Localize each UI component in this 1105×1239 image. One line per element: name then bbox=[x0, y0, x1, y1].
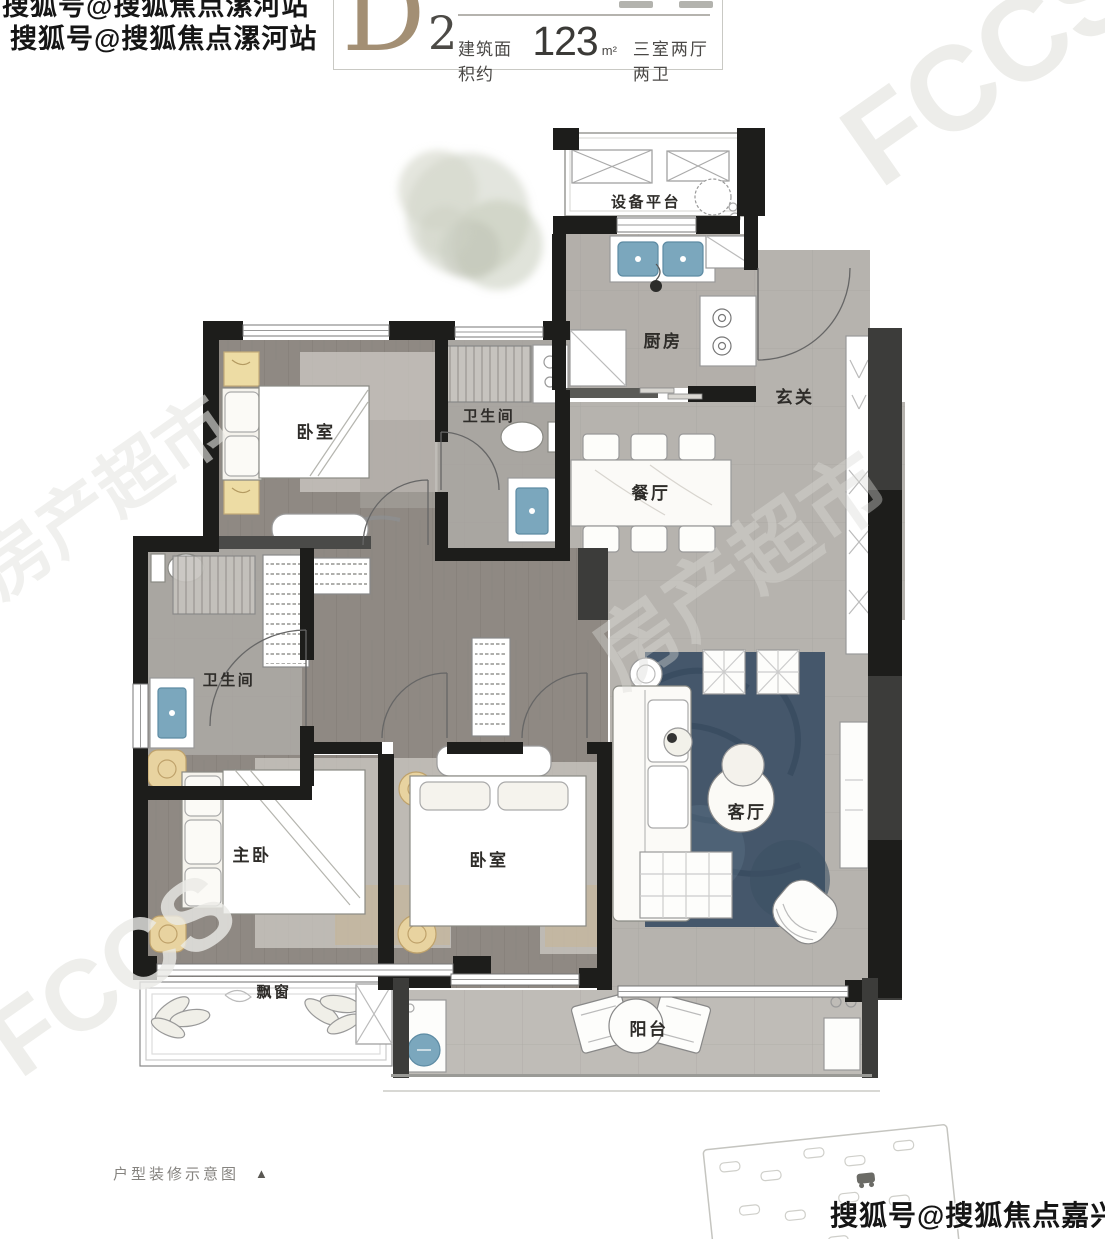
room-label-balcony: 阳台 bbox=[630, 1019, 669, 1039]
room-label-master: 主卧 bbox=[233, 845, 272, 865]
layout-text: 三室两厅两卫 bbox=[633, 35, 722, 85]
sohu-watermark-bottom-right: 搜狐号@搜狐焦点嘉兴站 bbox=[830, 1194, 1105, 1234]
header-divider-line bbox=[458, 14, 710, 16]
sohu-watermark-top-line2: 搜狐号@搜狐焦点漯河站 bbox=[10, 17, 317, 56]
room-label-kitchen: 厨房 bbox=[644, 331, 683, 351]
caption-triangle-marker: ▲ bbox=[255, 1166, 268, 1181]
room-label-baywindow: 飘窗 bbox=[256, 983, 291, 1001]
room-label-bedroom2: 卧室 bbox=[470, 850, 509, 870]
room-label-living: 客厅 bbox=[727, 802, 767, 822]
unit-info-row: 建筑面积约123m²三室两厅两卫 bbox=[458, 21, 722, 85]
footer-caption: 户型装修示意图 ▲ bbox=[113, 1163, 268, 1184]
floorplan-page: 设备平台 厨房 玄关 卫生间 卧室 餐厅 卫生间 主卧 卧室 客厅 飘窗 阳台 … bbox=[0, 0, 1105, 1239]
room-label-bath1: 卫生间 bbox=[463, 407, 516, 425]
brand-watermark-en: FCCS bbox=[818, 0, 1105, 211]
fridge bbox=[570, 330, 626, 386]
room-label-bedroom1: 卧室 bbox=[297, 422, 336, 442]
bedroom2-furniture bbox=[398, 746, 586, 953]
room-label-equipment-platform: 设备平台 bbox=[611, 193, 681, 211]
ac-unit-boxes bbox=[572, 150, 729, 183]
unit-header-box: D 2 建筑面积约123m²三室两厅两卫 bbox=[333, 0, 723, 70]
area-value: 123 bbox=[532, 21, 597, 62]
unit-number: 2 bbox=[428, 13, 457, 54]
area-unit: m² bbox=[602, 43, 617, 58]
area-prefix: 建筑面积约 bbox=[458, 35, 528, 85]
unit-letter: D bbox=[342, 0, 425, 56]
caption-text: 户型装修示意图 bbox=[113, 1163, 239, 1184]
stove bbox=[700, 296, 756, 366]
floorplan-drawing: 设备平台 厨房 玄关 卫生间 卧室 餐厅 卫生间 主卧 卧室 客厅 飘窗 阳台 … bbox=[0, 0, 1105, 1239]
tree bbox=[398, 150, 543, 290]
room-label-bath2: 卫生间 bbox=[203, 671, 256, 689]
room-label-dining: 餐厅 bbox=[632, 483, 671, 503]
clipped-text-fragment bbox=[619, 1, 713, 8]
room-label-foyer: 玄关 bbox=[776, 387, 815, 407]
